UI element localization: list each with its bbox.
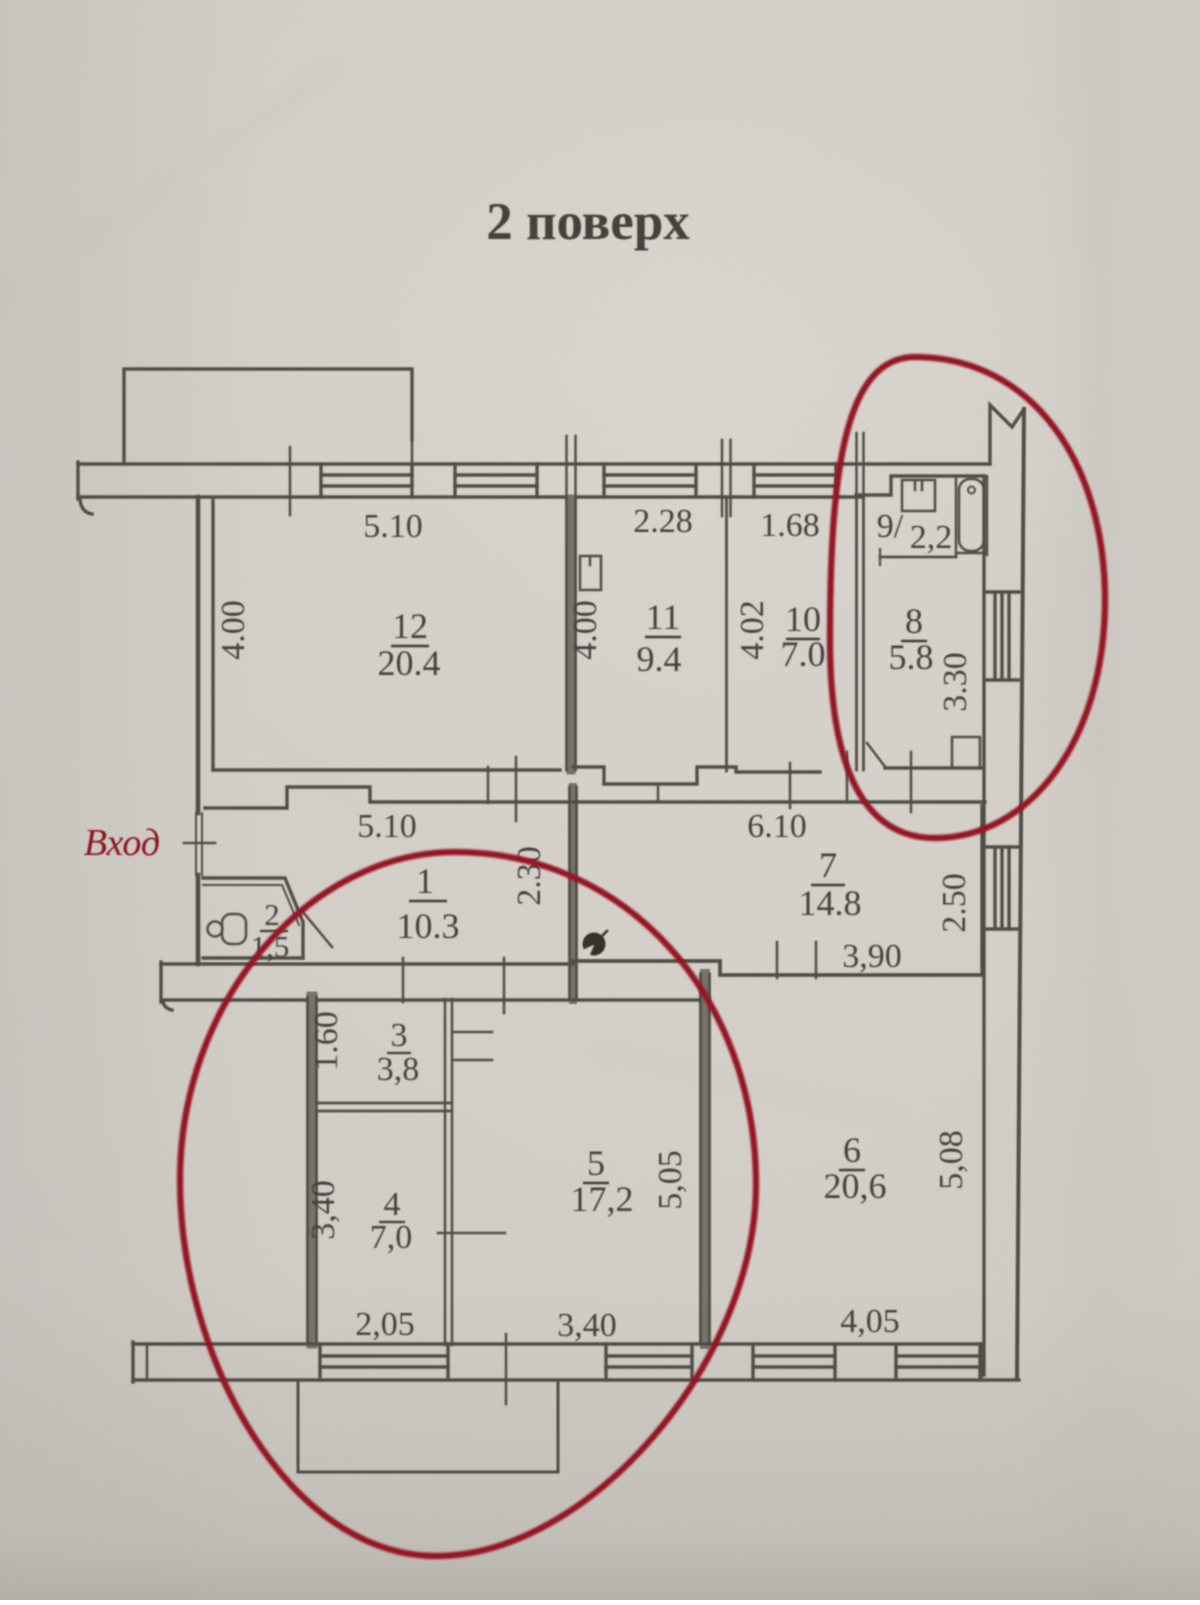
svg-text:9.4: 9.4: [637, 639, 682, 679]
svg-text:12: 12: [392, 606, 428, 646]
svg-text:4.00: 4.00: [567, 600, 604, 660]
svg-text:1: 1: [416, 861, 434, 901]
svg-text:9/: 9/: [877, 508, 904, 545]
svg-text:6.10: 6.10: [747, 808, 807, 845]
svg-text:20,6: 20,6: [824, 1166, 887, 1206]
svg-text:2,05: 2,05: [355, 1306, 415, 1343]
svg-text:7: 7: [819, 845, 837, 885]
svg-text:5.10: 5.10: [357, 808, 417, 845]
svg-text:17,2: 17,2: [571, 1179, 634, 1219]
svg-text:Вход: Вход: [84, 822, 160, 864]
svg-text:11: 11: [646, 597, 681, 637]
svg-text:10: 10: [785, 599, 821, 639]
svg-text:4.02: 4.02: [734, 600, 771, 660]
svg-text:5.8: 5.8: [889, 637, 934, 677]
svg-text:4: 4: [384, 1186, 401, 1223]
svg-text:4.00: 4.00: [215, 600, 252, 660]
svg-text:3,40: 3,40: [305, 1180, 342, 1240]
svg-text:7,0: 7,0: [370, 1219, 413, 1256]
svg-text:2.30: 2.30: [511, 846, 548, 906]
svg-text:2,2: 2,2: [910, 519, 953, 556]
svg-text:3,8: 3,8: [377, 1051, 420, 1088]
svg-text:5: 5: [587, 1143, 605, 1183]
svg-text:3.30: 3.30: [937, 652, 974, 712]
svg-text:5,08: 5,08: [933, 1130, 970, 1190]
svg-text:3: 3: [391, 1017, 408, 1054]
svg-text:1.68: 1.68: [760, 507, 820, 544]
svg-text:8: 8: [905, 601, 923, 641]
svg-text:10.3: 10.3: [397, 906, 460, 946]
svg-text:3,90: 3,90: [842, 938, 902, 975]
svg-text:2.50: 2.50: [936, 873, 973, 933]
svg-text:2.28: 2.28: [633, 503, 693, 540]
svg-text:6: 6: [843, 1130, 861, 1170]
svg-text:1.60: 1.60: [308, 1011, 345, 1071]
svg-text:2 поверх: 2 поверх: [486, 193, 690, 251]
svg-text:5.10: 5.10: [363, 508, 423, 545]
svg-text:2: 2: [264, 897, 280, 932]
svg-text:3,40: 3,40: [557, 1307, 617, 1344]
svg-text:7.0: 7.0: [781, 634, 826, 674]
svg-text:4,05: 4,05: [840, 1303, 900, 1340]
svg-text:14.8: 14.8: [799, 883, 862, 923]
svg-text:20.4: 20.4: [378, 643, 441, 683]
svg-text:5,05: 5,05: [652, 1150, 689, 1210]
